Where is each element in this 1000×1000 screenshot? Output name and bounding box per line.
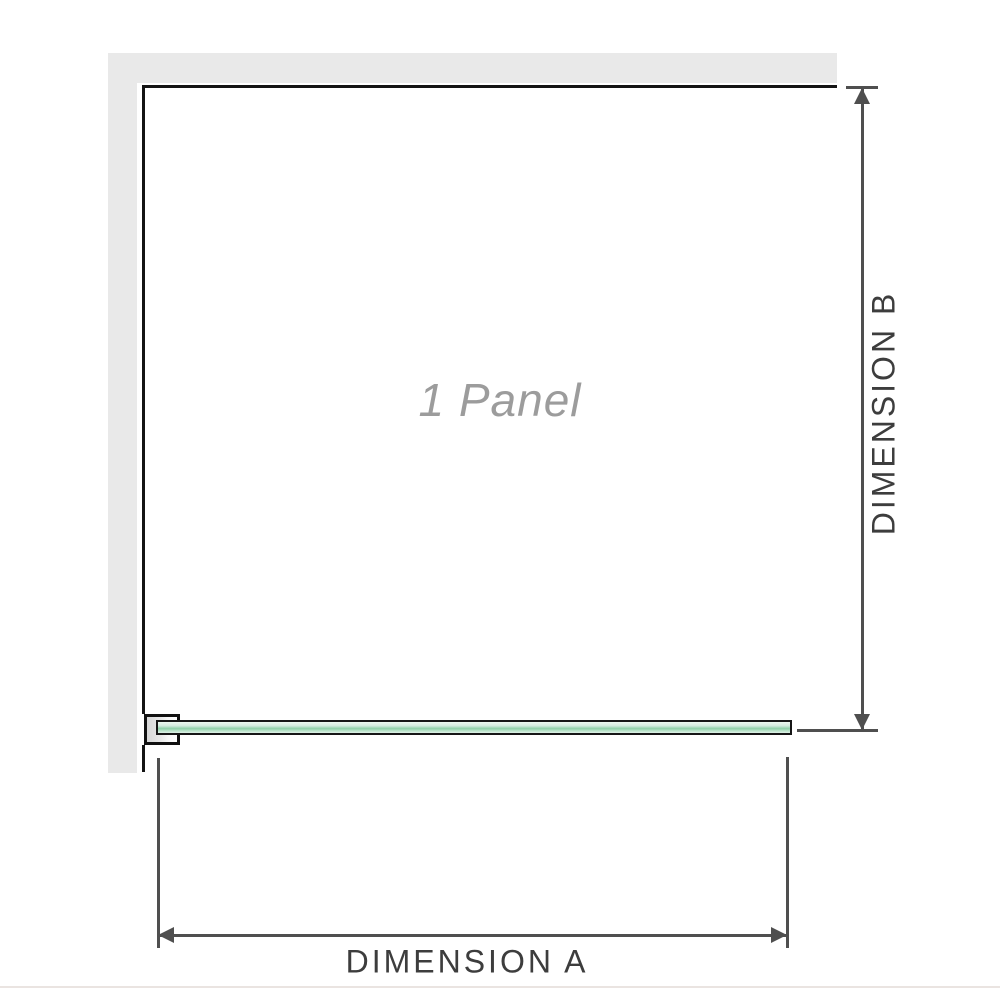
dimension-a-line [158,934,787,937]
glass-panel [156,720,792,735]
wall-top-strip [108,53,837,83]
dimension-b-line [861,88,864,730]
arrow-up-icon [854,88,870,104]
dimension-a-left-extension [157,758,160,948]
shower-screen-diagram: 1 Panel DIMENSION B DIMENSION A [0,0,1000,1000]
dimension-a-right-extension [786,757,789,948]
panel-count-label: 1 Panel [418,373,581,427]
dimension-b-label: DIMENSION B [866,291,903,536]
arrow-right-icon [771,927,787,943]
wall-left-strip [108,53,137,773]
arrow-down-icon [854,714,870,730]
arrow-left-icon [158,927,174,943]
enclosure-left-edge-lower [142,745,145,772]
enclosure-top-edge [142,85,837,88]
bottom-divider-line [0,986,1000,988]
dimension-a-label: DIMENSION A [346,944,589,981]
enclosure-left-edge-upper [142,85,145,714]
